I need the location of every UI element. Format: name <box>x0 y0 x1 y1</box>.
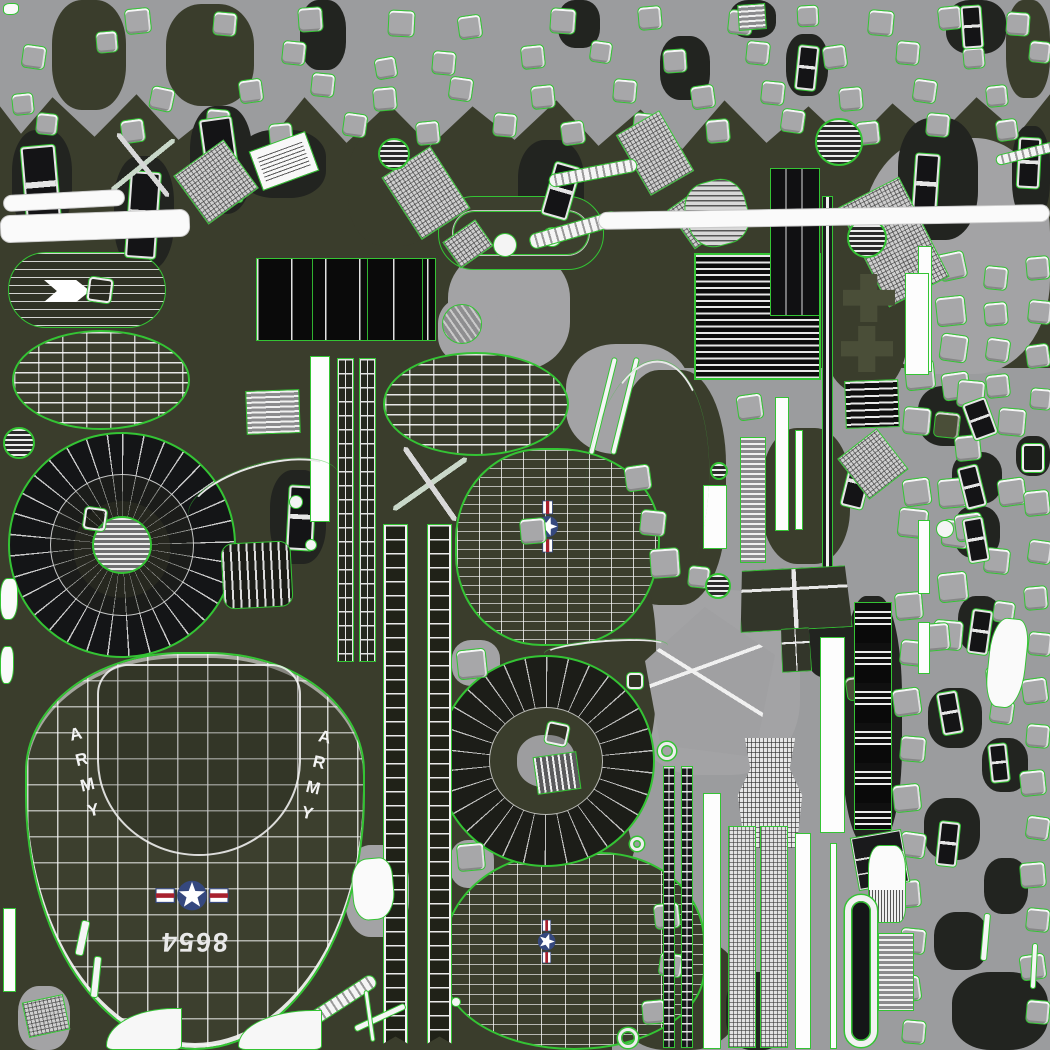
dark-blob <box>954 506 1000 558</box>
uv-texture-atlas: ARMY ARMY 8654 <box>0 0 1050 1050</box>
dark-blob <box>924 798 980 860</box>
dark-blob <box>660 36 710 100</box>
dark-blob <box>934 912 988 970</box>
tail-boom-strip <box>822 196 833 584</box>
dark-blob <box>958 596 1002 652</box>
dark-blob <box>952 452 1002 504</box>
pod-wireframe-island <box>383 352 569 456</box>
dark-blob <box>270 470 326 564</box>
dark-blob <box>952 972 1048 1050</box>
star-insignia <box>538 920 557 964</box>
dark-blob <box>984 858 1028 914</box>
tail-number: 8654 <box>148 926 240 957</box>
fuselage-bottom-island <box>443 852 705 1050</box>
disc-hub-grille <box>92 516 152 574</box>
dark-blob <box>1012 126 1050 220</box>
fuselage-mid-island <box>455 448 660 646</box>
olive-blob <box>822 244 908 392</box>
dark-blob <box>730 0 776 38</box>
cockpit-roof-outline <box>97 664 301 856</box>
donut-striped-patch <box>533 751 582 795</box>
olive-blob <box>1006 0 1050 98</box>
star-insignia <box>537 501 560 553</box>
dark-blob <box>928 688 982 748</box>
olive-blob <box>762 428 850 564</box>
gray-patch <box>18 986 70 1050</box>
dark-blob <box>300 0 346 70</box>
dark-blob <box>946 0 1006 54</box>
dark-blob <box>806 618 856 678</box>
chevron-mark <box>44 280 90 302</box>
dark-blob <box>726 972 788 1050</box>
vertical-stripe-panel <box>256 258 436 341</box>
background-gray-band <box>0 0 1050 152</box>
olive-blob <box>52 0 126 110</box>
dark-blob <box>786 34 828 96</box>
dark-blob <box>898 118 978 240</box>
dark-blob <box>12 130 72 232</box>
rotor-donut-island <box>437 655 655 867</box>
olive-blob <box>166 4 254 106</box>
grille-panel-island <box>694 253 821 380</box>
racetrack-outline-island <box>438 196 604 270</box>
rotor-disc-island <box>8 432 236 658</box>
dark-blob <box>558 0 600 48</box>
star-insignia <box>155 879 229 911</box>
racetrack-inner-ring <box>453 211 589 255</box>
pod-wireframe-island <box>12 330 190 430</box>
boat-hull-island <box>8 252 166 328</box>
dark-blob <box>1016 436 1050 476</box>
olive-blob <box>348 128 438 246</box>
dark-blob <box>238 130 326 198</box>
dark-blob <box>982 738 1028 792</box>
dark-blob <box>918 386 980 446</box>
